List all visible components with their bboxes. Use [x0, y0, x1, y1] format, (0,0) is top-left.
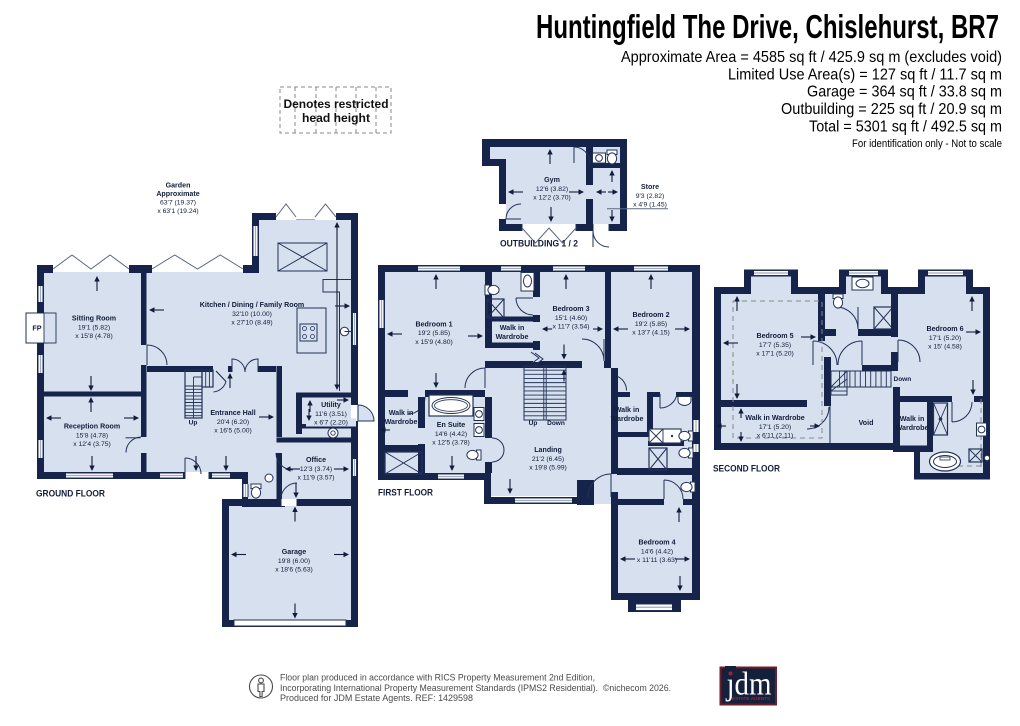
svg-text:Floor plan produced in accorda: Floor plan produced in accordance with R… [280, 672, 595, 682]
svg-text:Bedroom 2: Bedroom 2 [632, 311, 669, 319]
svg-text:Wardrobe: Wardrobe [496, 333, 529, 341]
svg-text:Office: Office [306, 456, 326, 464]
svg-text:Bedroom 1: Bedroom 1 [415, 320, 452, 328]
svg-text:Garden: Garden [166, 181, 191, 189]
svg-text:9'3 (2.82): 9'3 (2.82) [636, 193, 665, 200]
svg-text:Total = 5301 sq ft / 492.5 sq: Total = 5301 sq ft / 492.5 sq m [809, 118, 1002, 135]
svg-text:Huntingfield The Drive, Chisle: Huntingfield The Drive, Chislehurst, BR7 [536, 8, 999, 45]
svg-text:x 27'10 (8.49): x 27'10 (8.49) [231, 320, 272, 327]
svg-text:Bedroom 5: Bedroom 5 [756, 332, 793, 340]
svg-text:14'6 (4.42): 14'6 (4.42) [435, 431, 467, 438]
svg-text:x 6'7 (2.20): x 6'7 (2.20) [314, 420, 348, 427]
svg-text:Approximate Area = 4585 sq ft: Approximate Area = 4585 sq ft / 425.9 sq… [621, 49, 1002, 66]
svg-text:ESTATE AGENTS: ESTATE AGENTS [732, 696, 771, 702]
svg-text:19'2 (5.85): 19'2 (5.85) [418, 330, 450, 337]
svg-text:Wardrobe: Wardrobe [611, 415, 644, 423]
svg-text:x 16'5 (5.00): x 16'5 (5.00) [214, 428, 252, 435]
svg-text:15'1 (4.60): 15'1 (4.60) [555, 315, 587, 322]
svg-text:x 15'8 (4.78): x 15'8 (4.78) [75, 333, 113, 340]
svg-text:x 12'4 (3.75): x 12'4 (3.75) [73, 441, 111, 448]
svg-text:Walk in: Walk in [389, 409, 414, 417]
svg-text:x 18'6 (5.63): x 18'6 (5.63) [275, 567, 313, 574]
svg-text:Limited Use Area(s) = 127 sq f: Limited Use Area(s) = 127 sq ft / 11.7 s… [728, 66, 1002, 83]
svg-text:Up: Up [529, 420, 538, 427]
svg-text:Bedroom 6: Bedroom 6 [926, 325, 963, 333]
svg-text:12'3 (3.74): 12'3 (3.74) [300, 466, 332, 473]
svg-text:17'7 (5.35): 17'7 (5.35) [759, 342, 791, 349]
svg-text:FIRST FLOOR: FIRST FLOOR [378, 488, 433, 499]
svg-text:x 12'5 (3.78): x 12'5 (3.78) [432, 440, 470, 447]
svg-text:Garage = 364 sq ft / 33.8 sq m: Garage = 364 sq ft / 33.8 sq m [807, 84, 1002, 101]
svg-text:Void: Void [859, 419, 874, 427]
svg-text:x 63'1 (19.24): x 63'1 (19.24) [157, 208, 198, 215]
svg-text:15'8 (4.78): 15'8 (4.78) [76, 432, 108, 439]
svg-text:FP: FP [32, 324, 41, 333]
svg-text:x 4'9 (1.45): x 4'9 (1.45) [633, 202, 667, 209]
svg-text:x 19'8 (5.99): x 19'8 (5.99) [529, 465, 567, 472]
svg-text:En Suite: En Suite [437, 421, 465, 429]
svg-text:OUTBUILDING 1 / 2: OUTBUILDING 1 / 2 [500, 239, 578, 250]
svg-text:x 6'11 (2.11): x 6'11 (2.11) [757, 433, 794, 440]
svg-text:Produced for JDM Estate Agents: Produced for JDM Estate Agents. REF: 142… [280, 693, 473, 703]
svg-text:Wardrobe: Wardrobe [896, 424, 929, 432]
svg-text:x 11'11 (3.63): x 11'11 (3.63) [637, 557, 677, 564]
svg-text:Walk in: Walk in [500, 324, 525, 332]
svg-text:Walk in: Walk in [900, 415, 925, 423]
svg-text:20'4 (6.20): 20'4 (6.20) [217, 419, 249, 426]
svg-text:x 11'9 (3.57): x 11'9 (3.57) [297, 475, 334, 482]
svg-text:Bedroom 3: Bedroom 3 [552, 305, 589, 313]
svg-text:19'2 (5.85): 19'2 (5.85) [635, 321, 667, 328]
svg-text:Walk in Wardrobe: Walk in Wardrobe [745, 414, 804, 422]
svg-text:Up: Up [189, 420, 198, 427]
svg-text:For identification only - Not: For identification only - Not to scale [852, 138, 1002, 150]
svg-text:12'6 (3.82): 12'6 (3.82) [536, 186, 568, 193]
svg-text:Garage: Garage [282, 548, 307, 556]
svg-text:32'10 (10.00): 32'10 (10.00) [232, 311, 272, 318]
svg-text:Walk in: Walk in [615, 406, 640, 414]
svg-text:Sitting Room: Sitting Room [72, 315, 116, 323]
svg-text:63'7 (19.37): 63'7 (19.37) [160, 200, 196, 207]
svg-text:x 13'7 (4.15): x 13'7 (4.15) [632, 330, 670, 337]
svg-text:Down: Down [894, 376, 912, 383]
svg-text:19'8 (6.00): 19'8 (6.00) [278, 558, 310, 565]
svg-text:Store: Store [641, 183, 659, 191]
svg-text:x 15' (4.58): x 15' (4.58) [928, 344, 962, 351]
svg-text:Down: Down [547, 420, 565, 427]
svg-text:head height: head height [302, 111, 370, 125]
svg-text:Outbuilding = 225 sq ft / 20.9: Outbuilding = 225 sq ft / 20.9 sq m [781, 101, 1002, 118]
svg-text:14'6 (4.42): 14'6 (4.42) [641, 548, 673, 555]
svg-text:Gym: Gym [544, 176, 560, 184]
svg-text:Bedroom 4: Bedroom 4 [638, 539, 675, 547]
svg-text:x 17'1 (5.20): x 17'1 (5.20) [756, 351, 794, 358]
svg-text:Incorporating International Pr: Incorporating International Property Mea… [280, 683, 598, 693]
svg-text:17'1 (5.20): 17'1 (5.20) [759, 424, 791, 431]
svg-text:SECOND FLOOR: SECOND FLOOR [713, 464, 780, 475]
svg-text:17'1 (5.20): 17'1 (5.20) [929, 335, 961, 342]
svg-text:Wardrobe: Wardrobe [385, 418, 418, 426]
svg-text:Kitchen / Dining / Family Room: Kitchen / Dining / Family Room [200, 301, 304, 309]
svg-text:Denotes restricted: Denotes restricted [284, 97, 389, 111]
svg-text:x 12'2 (3.70): x 12'2 (3.70) [533, 195, 571, 202]
svg-text:x 11'7 (3.54): x 11'7 (3.54) [552, 324, 589, 331]
svg-text:Entrance Hall: Entrance Hall [210, 409, 255, 417]
svg-text:Reception Room: Reception Room [64, 423, 120, 431]
svg-text:Approximate: Approximate [156, 190, 199, 198]
svg-text:x 15'9 (4.80): x 15'9 (4.80) [415, 339, 453, 346]
svg-text:11'6 (3.51): 11'6 (3.51) [315, 411, 347, 418]
svg-text:21'2 (6.45): 21'2 (6.45) [532, 456, 564, 463]
svg-text:Landing: Landing [534, 446, 562, 454]
svg-text:19'1 (5.82): 19'1 (5.82) [78, 324, 110, 331]
svg-text:©nichecom 2026.: ©nichecom 2026. [603, 683, 671, 693]
svg-text:Utility: Utility [321, 401, 341, 409]
svg-text:GROUND FLOOR: GROUND FLOOR [36, 489, 105, 500]
